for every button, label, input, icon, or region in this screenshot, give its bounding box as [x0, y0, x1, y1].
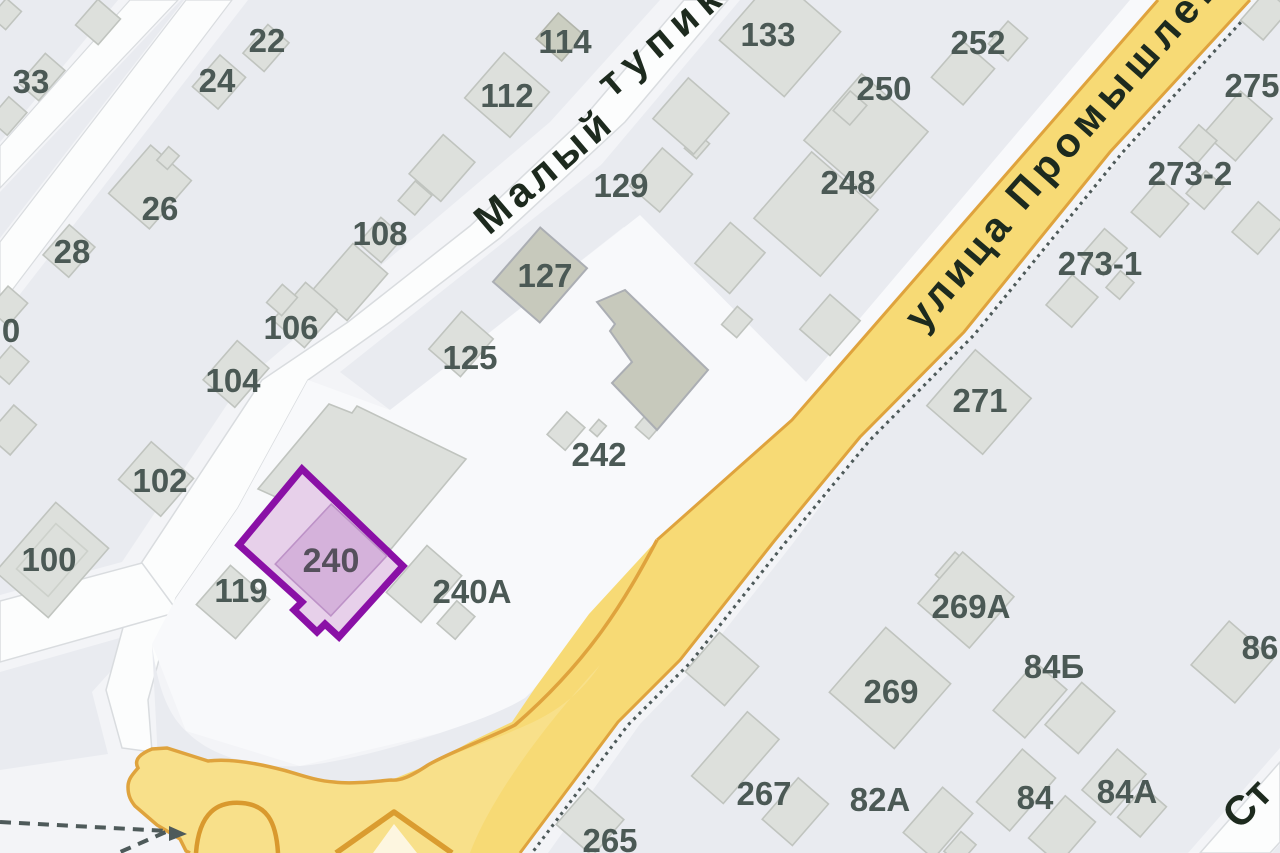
svg-text:133: 133 — [740, 16, 795, 53]
svg-text:269А: 269А — [932, 588, 1011, 625]
svg-text:82А: 82А — [850, 781, 911, 818]
svg-text:269: 269 — [863, 673, 918, 710]
svg-text:129: 129 — [593, 167, 648, 204]
svg-text:108: 108 — [352, 215, 407, 252]
svg-text:273-1: 273-1 — [1058, 245, 1142, 282]
svg-text:84Б: 84Б — [1024, 648, 1084, 685]
svg-text:114: 114 — [538, 23, 592, 60]
svg-text:22: 22 — [249, 22, 286, 59]
svg-text:240: 240 — [303, 542, 360, 580]
svg-text:112: 112 — [480, 77, 533, 114]
svg-text:84А: 84А — [1097, 773, 1158, 810]
svg-text:273-2: 273-2 — [1148, 155, 1232, 192]
svg-text:125: 125 — [442, 339, 497, 376]
svg-text:33: 33 — [13, 63, 50, 100]
svg-text:104: 104 — [205, 362, 261, 399]
svg-text:265: 265 — [582, 822, 637, 853]
svg-text:119: 119 — [214, 572, 267, 609]
svg-text:0: 0 — [2, 312, 20, 349]
svg-text:102: 102 — [132, 462, 187, 499]
svg-text:242: 242 — [571, 436, 626, 473]
svg-text:86: 86 — [1242, 629, 1279, 666]
svg-text:240А: 240А — [433, 573, 512, 610]
svg-text:250: 250 — [856, 70, 911, 107]
svg-text:26: 26 — [142, 190, 179, 227]
svg-text:267: 267 — [736, 775, 791, 812]
svg-text:271: 271 — [952, 382, 1007, 419]
svg-text:84: 84 — [1017, 779, 1054, 816]
svg-text:252: 252 — [950, 24, 1005, 61]
svg-text:106: 106 — [263, 309, 318, 346]
svg-text:28: 28 — [54, 233, 91, 270]
svg-text:24: 24 — [199, 62, 236, 99]
svg-text:127: 127 — [517, 257, 572, 294]
svg-text:248: 248 — [820, 164, 875, 201]
svg-text:100: 100 — [21, 541, 76, 578]
svg-text:275: 275 — [1224, 67, 1279, 104]
